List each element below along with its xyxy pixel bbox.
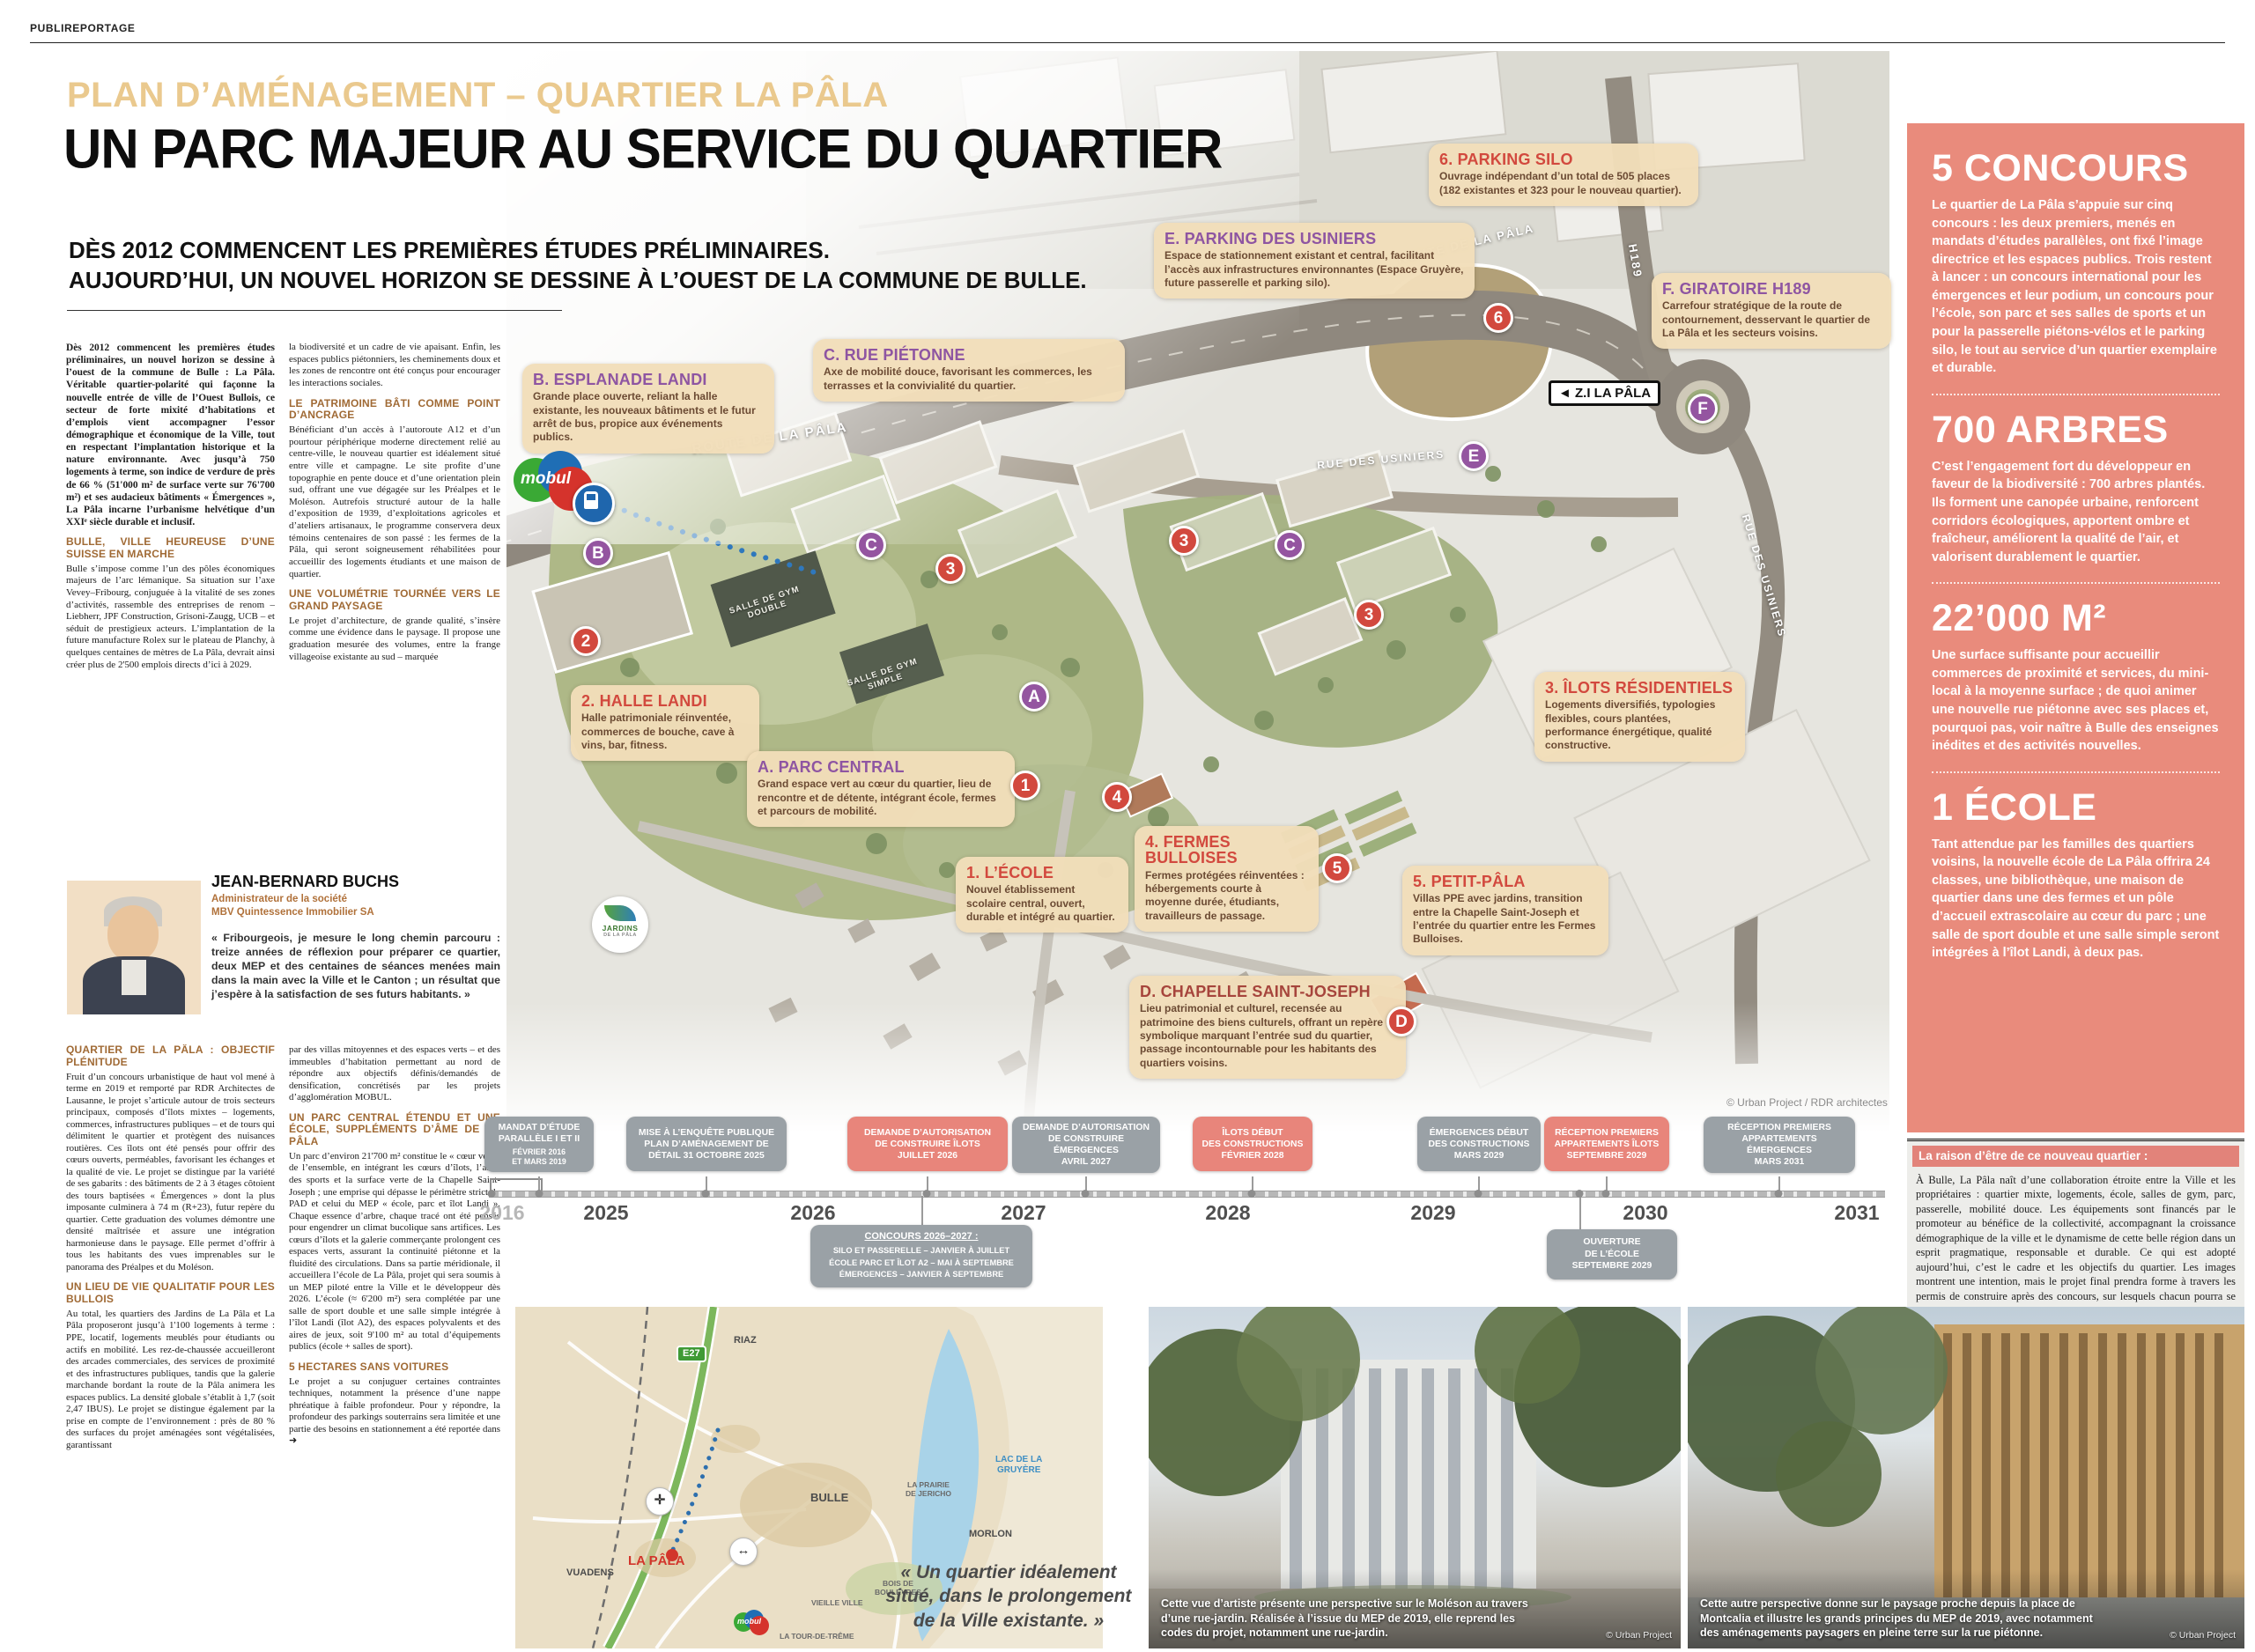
section-body: par des villas mitoyennes et des espaces…: [289, 1044, 500, 1104]
callout-title: 3. ÎLOTS RÉSIDENTIELS: [1545, 680, 1734, 696]
reason-title: La raison d’être de ce nouveau quartier …: [1912, 1146, 2239, 1167]
map-marker-A: A: [1019, 682, 1049, 712]
callout-title: 4. FERMES BULLOISES: [1145, 834, 1308, 867]
callout-title: C. RUE PIÉTONNE: [824, 347, 1114, 363]
label-lac-gruyere: LAC DE LA GRUYÈRE: [995, 1455, 1042, 1475]
callout-body: Halle patrimoniale réinventée, commerces…: [581, 712, 749, 752]
map-marker-F: F: [1688, 394, 1718, 424]
callout-parc-central: A. PARC CENTRAL Grand espace vert au cœu…: [747, 751, 1015, 827]
inset-quote: « Un quartier idéalement situé, dans le …: [876, 1560, 1141, 1633]
e27-route-badge: E27: [676, 1346, 706, 1362]
label-tour-de-treme: LA TOUR-DE-TRÊME: [780, 1633, 854, 1641]
callout-parking-usiniers: E. PARKING DES USINIERS Espace de statio…: [1154, 223, 1475, 299]
year-2025: 2025: [583, 1203, 628, 1223]
axis-dot: [1775, 1190, 1783, 1198]
stat-body: Une surface suffisante pour accueillir c…: [1932, 646, 2220, 755]
callout-body: Grand espace vert au cœur du quartier, l…: [758, 778, 1004, 818]
person-name: JEAN-BERNARD BUCHS: [211, 874, 399, 889]
map-marker-3c: 3: [1354, 600, 1384, 630]
divider: [1932, 394, 2220, 395]
divider: [1932, 771, 2220, 773]
milestone-reception-emergences: RÉCEPTION PREMIERS APPARTEMENTS ÉMERGENC…: [1704, 1117, 1855, 1173]
concours-line: ÉMERGENCES – JANVIER À SEPTEMBRE: [818, 1269, 1024, 1280]
rendering-moleson-view: Cette vue d’artiste présente une perspec…: [1149, 1307, 1681, 1648]
milestone-mandat: MANDAT D’ÉTUDE PARALLÈLE I ET II FÉVRIER…: [484, 1117, 594, 1172]
label-prairie-jericho: LA PRAIRIE DE JERICHO: [906, 1481, 951, 1499]
person-company: MBV Quintessence Immobilier SA: [211, 906, 374, 918]
zi-la-pala-sign: ◄ Z.I LA PÂLA: [1549, 380, 1660, 406]
axis-dot: [536, 1190, 543, 1198]
section-heading: UN PARC CENTRAL ÉTENDU ET UNE ÉCOLE, SUP…: [289, 1112, 500, 1148]
year-2029: 2029: [1410, 1203, 1455, 1223]
map-marker-D: D: [1386, 1007, 1416, 1036]
stat-ecole: 1 ÉCOLE Tant attendue par les familles d…: [1932, 789, 2220, 962]
milestone-date: FÉVRIER 2016 ET MARS 2019: [492, 1147, 587, 1167]
concours-line: SILO ET PASSERELLE – JANVIER À JUILLET: [818, 1245, 1024, 1257]
portrait-head: [107, 905, 159, 962]
callout-body: Grande place ouverte, reliant la halle e…: [533, 390, 764, 444]
masthead-label: PUBLIREPORTAGE: [30, 23, 136, 33]
concours-line: ÉCOLE PARC ET ÎLOT A2 – MAI À SEPTEMBRE: [818, 1257, 1024, 1269]
train-station-icon: [573, 483, 615, 525]
map-marker-6: 6: [1483, 303, 1513, 333]
article-intro: Dès 2012 commencent les premières études…: [66, 342, 275, 528]
newspaper-page: PUBLIREPORTAGE: [0, 0, 2255, 1652]
callout-chapelle-saint-joseph: D. CHAPELLE SAINT-JOSEPH Lieu patrimonia…: [1129, 976, 1406, 1079]
milestone-emergences-debut: ÉMERGENCES DÉBUT DES CONSTRUCTIONS MARS …: [1417, 1117, 1541, 1171]
label-vieille-ville: VIEILLE VILLE: [811, 1599, 863, 1608]
callout-body: Lieu patrimonial et culturel, recensée a…: [1140, 1002, 1395, 1070]
reason-body: À Bulle, La Pâla naît d’une collaboratio…: [1907, 1167, 2244, 1324]
timeline-axis: [489, 1191, 1885, 1198]
section-heading: 5 HECTARES SANS VOITURES: [289, 1361, 500, 1374]
axis-dot: [1475, 1190, 1482, 1198]
callout-title: D. CHAPELLE SAINT-JOSEPH: [1140, 984, 1395, 999]
map-marker-C1: C: [856, 530, 886, 560]
axis-dot: [923, 1190, 931, 1198]
stat-title: 1 ÉCOLE: [1932, 789, 2220, 827]
callout-body: Nouvel établissement scolaire central, o…: [966, 883, 1118, 924]
milestone-label: MANDAT D’ÉTUDE PARALLÈLE I ET II: [492, 1122, 587, 1145]
section-body: Bulle s’impose comme l’un des pôles écon…: [66, 564, 275, 672]
label-vuadens: VUADENS: [566, 1567, 614, 1579]
callout-body: Carrefour stratégique de la route de con…: [1662, 299, 1881, 340]
year-2026: 2026: [790, 1203, 835, 1223]
label-la-pala: LA PÂLA: [628, 1553, 684, 1568]
section-heading: BULLE, VILLE HEUREUSE D’UNE SUISSE EN MA…: [66, 536, 275, 561]
callout-giratoire-h189: F. GIRATOIRE H189 Carrefour stratégique …: [1652, 273, 1891, 349]
callout-rue-pietonne: C. RUE PIÉTONNE Axe de mobilité douce, f…: [813, 339, 1125, 402]
photo-credit: © Urban Project: [1606, 1631, 1672, 1641]
milestone-autorisation-emergences: DEMANDE D’AUTORISATION DE CONSTRUIRE ÉME…: [1012, 1117, 1160, 1173]
ouverture-ecole-box: OUVERTURE DE L’ÉCOLE SEPTEMBRE 2029: [1547, 1229, 1677, 1280]
callout-title: F. GIRATOIRE H189: [1662, 281, 1881, 297]
callout-title: 6. PARKING SILO: [1439, 151, 1688, 167]
aerial-map-graphic: [506, 51, 1889, 1132]
article-column-2-top: la biodiversité et un cadre de vie apais…: [289, 342, 500, 867]
stat-title: 700 ARBRES: [1932, 411, 2220, 449]
header-rule: [67, 310, 562, 311]
train-glyph: [584, 491, 598, 509]
milestone-reception-ilots: RÉCEPTION PREMIERS APPARTEMENTS ÎLOTS SE…: [1544, 1117, 1669, 1171]
leaf-icon: [604, 905, 636, 921]
concours-title: CONCOURS 2026–2027 :: [818, 1231, 1024, 1242]
section-body: Fruit d’un concours urbanistique de haut…: [66, 1072, 275, 1274]
label-morlon: MORLON: [969, 1529, 1012, 1540]
callout-ecole: 1. L’ÉCOLE Nouvel établissement scolaire…: [956, 857, 1128, 933]
map-marker-1: 1: [1010, 771, 1040, 800]
stat-body: C’est l’engagement fort du développeur e…: [1932, 458, 2220, 566]
masterplan-map: ROUTE DE LA PÂLA ROUTE DE LA PÂLA RUE DE…: [506, 51, 1889, 1132]
stat-arbres: 700 ARBRES C’est l’engagement fort du dé…: [1932, 411, 2220, 566]
jardins-de-la-pala-logo: JARDINS DE LA PÂLA: [592, 896, 648, 953]
callout-title: B. ESPLANADE LANDI: [533, 372, 764, 387]
photo-credit: © Urban Project: [2170, 1631, 2236, 1641]
person-role: Administrateur de la société: [211, 893, 347, 905]
article-column-2-bottom: par des villas mitoyennes et des espaces…: [289, 1044, 500, 1648]
year-2028: 2028: [1205, 1203, 1250, 1223]
callout-title: E. PARKING DES USINIERS: [1164, 231, 1464, 247]
axis-dot: [1082, 1190, 1090, 1198]
stat-body: Le quartier de La Pâla s’appuie sur cinq…: [1932, 196, 2220, 378]
label-bulle: BULLE: [810, 1492, 848, 1505]
callout-body: Fermes protégées réinventées : hébergeme…: [1145, 869, 1308, 923]
section-body: la biodiversité et un cadre de vie apais…: [289, 342, 500, 390]
callout-esplanade-landi: B. ESPLANADE LANDI Grande place ouverte,…: [522, 364, 774, 454]
photo-caption: Cette autre perspective donne sur le pay…: [1700, 1597, 2114, 1640]
year-2016: 2016: [479, 1203, 524, 1223]
map-marker-3a: 3: [935, 554, 965, 584]
map-marker-C2: C: [1275, 530, 1305, 560]
axis-dot: [488, 1190, 496, 1198]
rendering-rue-pietonne: Cette autre perspective donne sur le pay…: [1688, 1307, 2244, 1648]
timeline-2016-bracket: [490, 1178, 543, 1191]
callout-body: Ouvrage indépendant d’un total de 505 pl…: [1439, 170, 1688, 197]
map-marker-3b: 3: [1169, 526, 1199, 556]
label-riaz: RIAZ: [734, 1335, 757, 1346]
callout-petit-pala: 5. PETIT-PÂLA Villas PPE avec jardins, t…: [1402, 866, 1608, 955]
stat-title: 22’000 M²: [1932, 600, 2220, 638]
map-marker-E: E: [1459, 441, 1489, 471]
section-heading: UN LIEU DE VIE QUALITATIF POUR LES BULLO…: [66, 1281, 275, 1306]
article-title: UN PARC MAJEUR AU SERVICE DU QUARTIER: [63, 122, 1222, 177]
section-body: Le projet d’architecture, de grande qual…: [289, 616, 500, 664]
article-subtitle-1: DÈS 2012 COMMENCENT LES PREMIÈRES ÉTUDES…: [69, 236, 830, 265]
callout-body: Villas PPE avec jardins, transition entr…: [1413, 892, 1598, 946]
stat-title: 5 CONCOURS: [1932, 150, 2220, 188]
callout-body: Logements diversifiés, typologies flexib…: [1545, 698, 1734, 752]
callout-title: 1. L’ÉCOLE: [966, 865, 1118, 881]
connector-concours: [921, 1196, 923, 1225]
person-quote: « Fribourgeois, je mesure le long chemin…: [211, 932, 500, 1002]
callout-ilots-residentiels: 3. ÎLOTS RÉSIDENTIELS Logements diversif…: [1534, 672, 1745, 762]
callout-title: A. PARC CENTRAL: [758, 759, 1004, 775]
milestone-ilots-debut: ÎLOTS DÉBUT DES CONSTRUCTIONS FÉVRIER 20…: [1193, 1117, 1312, 1171]
jardins-wordmark: JARDINS: [592, 925, 648, 933]
section-heading: LE PATRIMOINE BÂTI COMME POINT D’ANCRAGE: [289, 398, 500, 423]
map-marker-B: B: [583, 538, 613, 568]
axis-dot: [702, 1190, 710, 1198]
poi-icon-2: ↔: [729, 1538, 758, 1566]
callout-parking-silo: 6. PARKING SILO Ouvrage indépendant d’un…: [1429, 144, 1698, 206]
callout-body: Espace de stationnement existant et cent…: [1164, 249, 1464, 290]
poi-icon-1: ✛: [646, 1487, 674, 1516]
callout-body: Axe de mobilité douce, favorisant les co…: [824, 365, 1114, 393]
top-rule: [30, 42, 2225, 43]
year-2031: 2031: [1834, 1203, 1879, 1223]
year-2027: 2027: [1001, 1203, 1046, 1223]
article-kicker: PLAN D’AMÉNAGEMENT – QUARTIER LA PÂLA: [67, 77, 889, 113]
callout-halle-landi: 2. HALLE LANDI Halle patrimoniale réinve…: [571, 685, 759, 761]
mobul-wordmark: mobul: [521, 470, 571, 487]
mobul-mini-logo: mobul: [734, 1610, 773, 1634]
milestone-enquete: MISE À L’ENQUÊTE PUBLIQUE PLAN D’AMÉNAGE…: [626, 1117, 787, 1171]
stat-body: Tant attendue par les familles des quart…: [1932, 836, 2220, 962]
section-body: Un parc d’environ 21'700 m² constitue le…: [289, 1151, 500, 1353]
photo-caption: Cette vue d’artiste présente une perspec…: [1161, 1597, 1549, 1640]
portrait-photo: [67, 881, 201, 1014]
article-subtitle-2: AUJOURD’HUI, UN NOUVEL HORIZON SE DESSIN…: [69, 266, 1087, 295]
portrait-shirt: [122, 960, 146, 995]
map-credit: © Urban Project / RDR architectes: [1726, 1097, 1888, 1108]
jardins-subtitle: DE LA PÂLA: [592, 933, 648, 939]
stat-concours: 5 CONCOURS Le quartier de La Pâla s’appu…: [1932, 150, 2220, 378]
section-body: Bénéficiant d’un accès à l’autoroute A12…: [289, 424, 500, 580]
section-body: Le projet a su conjuguer certaines contr…: [289, 1376, 500, 1448]
milestone-autorisation-ilots: DEMANDE D’AUTORISATION DE CONSTRUIRE ÎLO…: [847, 1117, 1008, 1171]
callout-fermes-bulloises: 4. FERMES BULLOISES Fermes protégées réi…: [1135, 826, 1319, 932]
section-heading: UNE VOLUMÉTRIE TOURNÉE VERS LE GRAND PAY…: [289, 588, 500, 613]
axis-dot: [1248, 1190, 1256, 1198]
callout-title: 5. PETIT-PÂLA: [1413, 874, 1598, 889]
axis-dot: [1576, 1190, 1584, 1198]
section-heading: QUARTIER DE LA PÂLA : OBJECTIF PLÉNITUDE: [66, 1044, 275, 1069]
map-marker-5: 5: [1322, 853, 1352, 883]
article-column-1-bottom: QUARTIER DE LA PÂLA : OBJECTIF PLÉNITUDE…: [66, 1044, 275, 1648]
callout-title: 2. HALLE LANDI: [581, 693, 749, 709]
section-body: Au total, les quartiers des Jardins de L…: [66, 1309, 275, 1451]
divider: [1932, 582, 2220, 584]
article-column-1-top: Dès 2012 commencent les premières études…: [66, 342, 275, 867]
map-marker-4: 4: [1102, 782, 1132, 812]
mobul-wordmark: mobul: [737, 1618, 761, 1626]
connector-ouverture: [1579, 1196, 1581, 1229]
year-2030: 2030: [1623, 1203, 1667, 1223]
stat-surface: 22’000 M² Une surface suffisante pour ac…: [1932, 600, 2220, 755]
concours-box: CONCOURS 2026–2027 : SILO ET PASSERELLE …: [810, 1225, 1032, 1287]
stats-sidebar: 5 CONCOURS Le quartier de La Pâla s’appu…: [1907, 123, 2244, 1132]
map-marker-2: 2: [571, 626, 601, 656]
axis-dot: [1602, 1190, 1610, 1198]
